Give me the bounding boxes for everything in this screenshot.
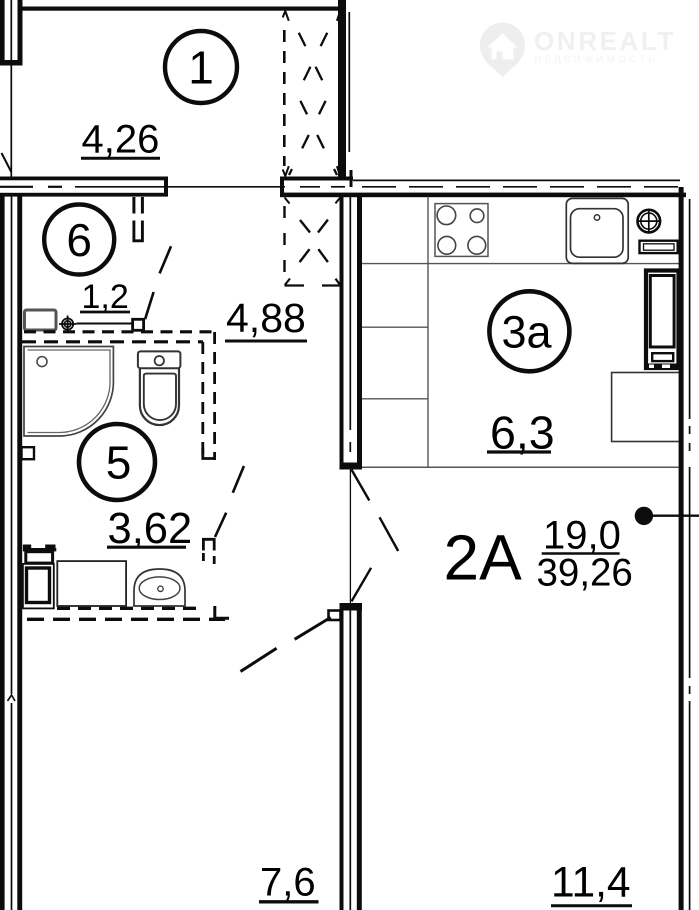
svg-text:4,26: 4,26: [82, 118, 160, 162]
svg-text:3а: 3а: [501, 307, 552, 358]
svg-text:7,6: 7,6: [260, 861, 316, 905]
svg-text:1,2: 1,2: [82, 278, 129, 316]
svg-text:НЕДВИЖИМОСТЬ: НЕДВИЖИМОСТЬ: [534, 55, 658, 66]
svg-text:39,26: 39,26: [537, 552, 633, 595]
svg-text:11,4: 11,4: [551, 860, 631, 907]
svg-text:6: 6: [66, 214, 92, 266]
svg-text:2А: 2А: [444, 522, 523, 594]
svg-text:4,88: 4,88: [226, 295, 306, 341]
svg-text:1: 1: [188, 42, 214, 94]
svg-text:5: 5: [106, 437, 132, 489]
svg-text:ONREALT: ONREALT: [534, 26, 676, 56]
